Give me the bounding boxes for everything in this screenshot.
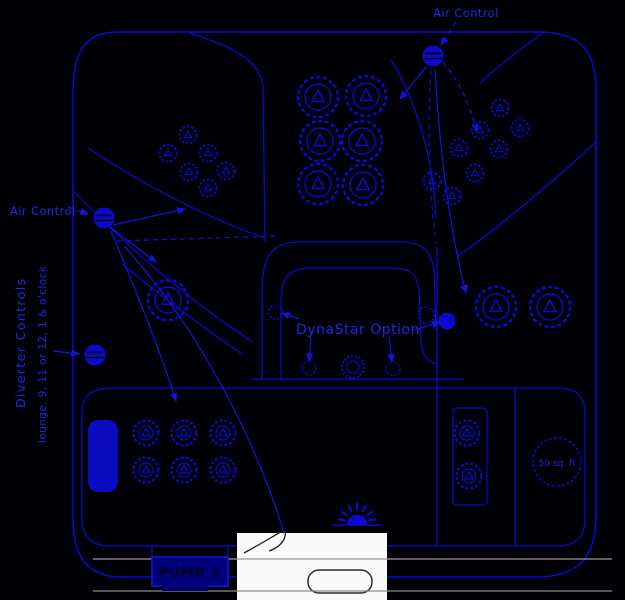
jet-medium [172,421,197,446]
seat-curve-c [122,264,242,354]
arrow-dynastar-left [282,313,299,319]
jet-large [298,164,338,204]
dynastar-jets [269,305,455,378]
jet-medium [134,458,159,483]
seat-divider-right [391,60,436,218]
arrow-diverter-label-to-knob [53,351,79,354]
spa-light-icon [331,503,383,526]
jet-small [160,145,177,162]
top-center-jet-cluster [298,76,386,205]
jet-small [451,140,468,157]
arrow-to-bottom-jets [111,231,176,401]
jet-small [491,141,508,158]
seat-curve-d [458,142,596,256]
seat-divider-left [190,33,265,242]
arrow-dynastar-bottom-left [309,337,311,361]
seat-curve-f [429,70,436,244]
jet-small [512,120,529,137]
jet-small [472,122,489,139]
jet-medium [172,458,197,483]
jet-large [346,76,386,116]
pump-box-base [162,584,208,591]
spa-diagram: 50 sq. ft Air [0,0,625,600]
right-seat-jet [530,287,570,327]
air-control-top-label: Air Control [433,6,498,20]
arrow-to-top-left-cluster [113,209,185,225]
arrow-top-label-to-knob [441,22,456,45]
seat-curve-e [480,33,543,83]
air-control-left-label: Air Control [10,204,75,218]
pump-label: PUMP 1 [159,566,221,581]
top-left-jet-cluster [160,127,235,197]
jet-small [181,164,198,181]
jet-large [300,121,340,161]
spa-diagram-canvas: 50 sq. ft Air [0,0,625,600]
right-seat-jet [476,287,516,327]
pump-connectors [152,546,228,557]
line-to-lounge [117,236,276,241]
jet-medium [211,421,236,446]
dynastar-jet [386,362,400,376]
air-control-knob-left [94,208,114,228]
bay-jet [457,464,482,489]
diverter-control-knob [85,345,105,365]
dynastar-jet [302,361,316,375]
bottom-seat-jet-cluster [134,421,236,483]
jet-small [467,165,484,182]
jet-small [200,145,217,162]
lounge-outer [262,242,436,379]
equipment-bay-panel [453,408,487,505]
jet-small [180,127,197,144]
jet-large [298,77,338,117]
jet-large [343,165,383,205]
air-control-knob-top [423,46,443,66]
jet-small [492,100,509,117]
head-pillow [88,420,118,492]
diverter-label-line2: lounge, 9, 11 or 12, 1 & o'clock [37,265,49,443]
filter: 50 sq. ft [533,438,581,486]
spa-shell-outline [73,32,596,577]
top-right-jet-cluster [424,100,529,205]
diverter-label-line1: Diverter Controls [13,277,28,408]
bottom-section-outline [82,388,585,546]
pump-box: PUMP 1 [152,546,228,591]
dynastar-option-label: DynaStar Option [296,322,420,338]
seat-curve-a [88,148,262,237]
white-logo-panel [237,530,387,600]
bay-jet [455,421,480,446]
jet-small [218,163,235,180]
jet-large [342,121,382,161]
jet-medium [134,421,159,446]
filter-size-label: 50 sq. ft [539,459,576,469]
dynastar-jet [439,313,455,329]
jet-small [200,180,217,197]
jet-medium [211,458,236,483]
arrow-to-right-cluster [443,62,477,132]
arrow-dynastar-bottom-right [389,337,392,362]
dynastar-center-jet [342,356,364,378]
